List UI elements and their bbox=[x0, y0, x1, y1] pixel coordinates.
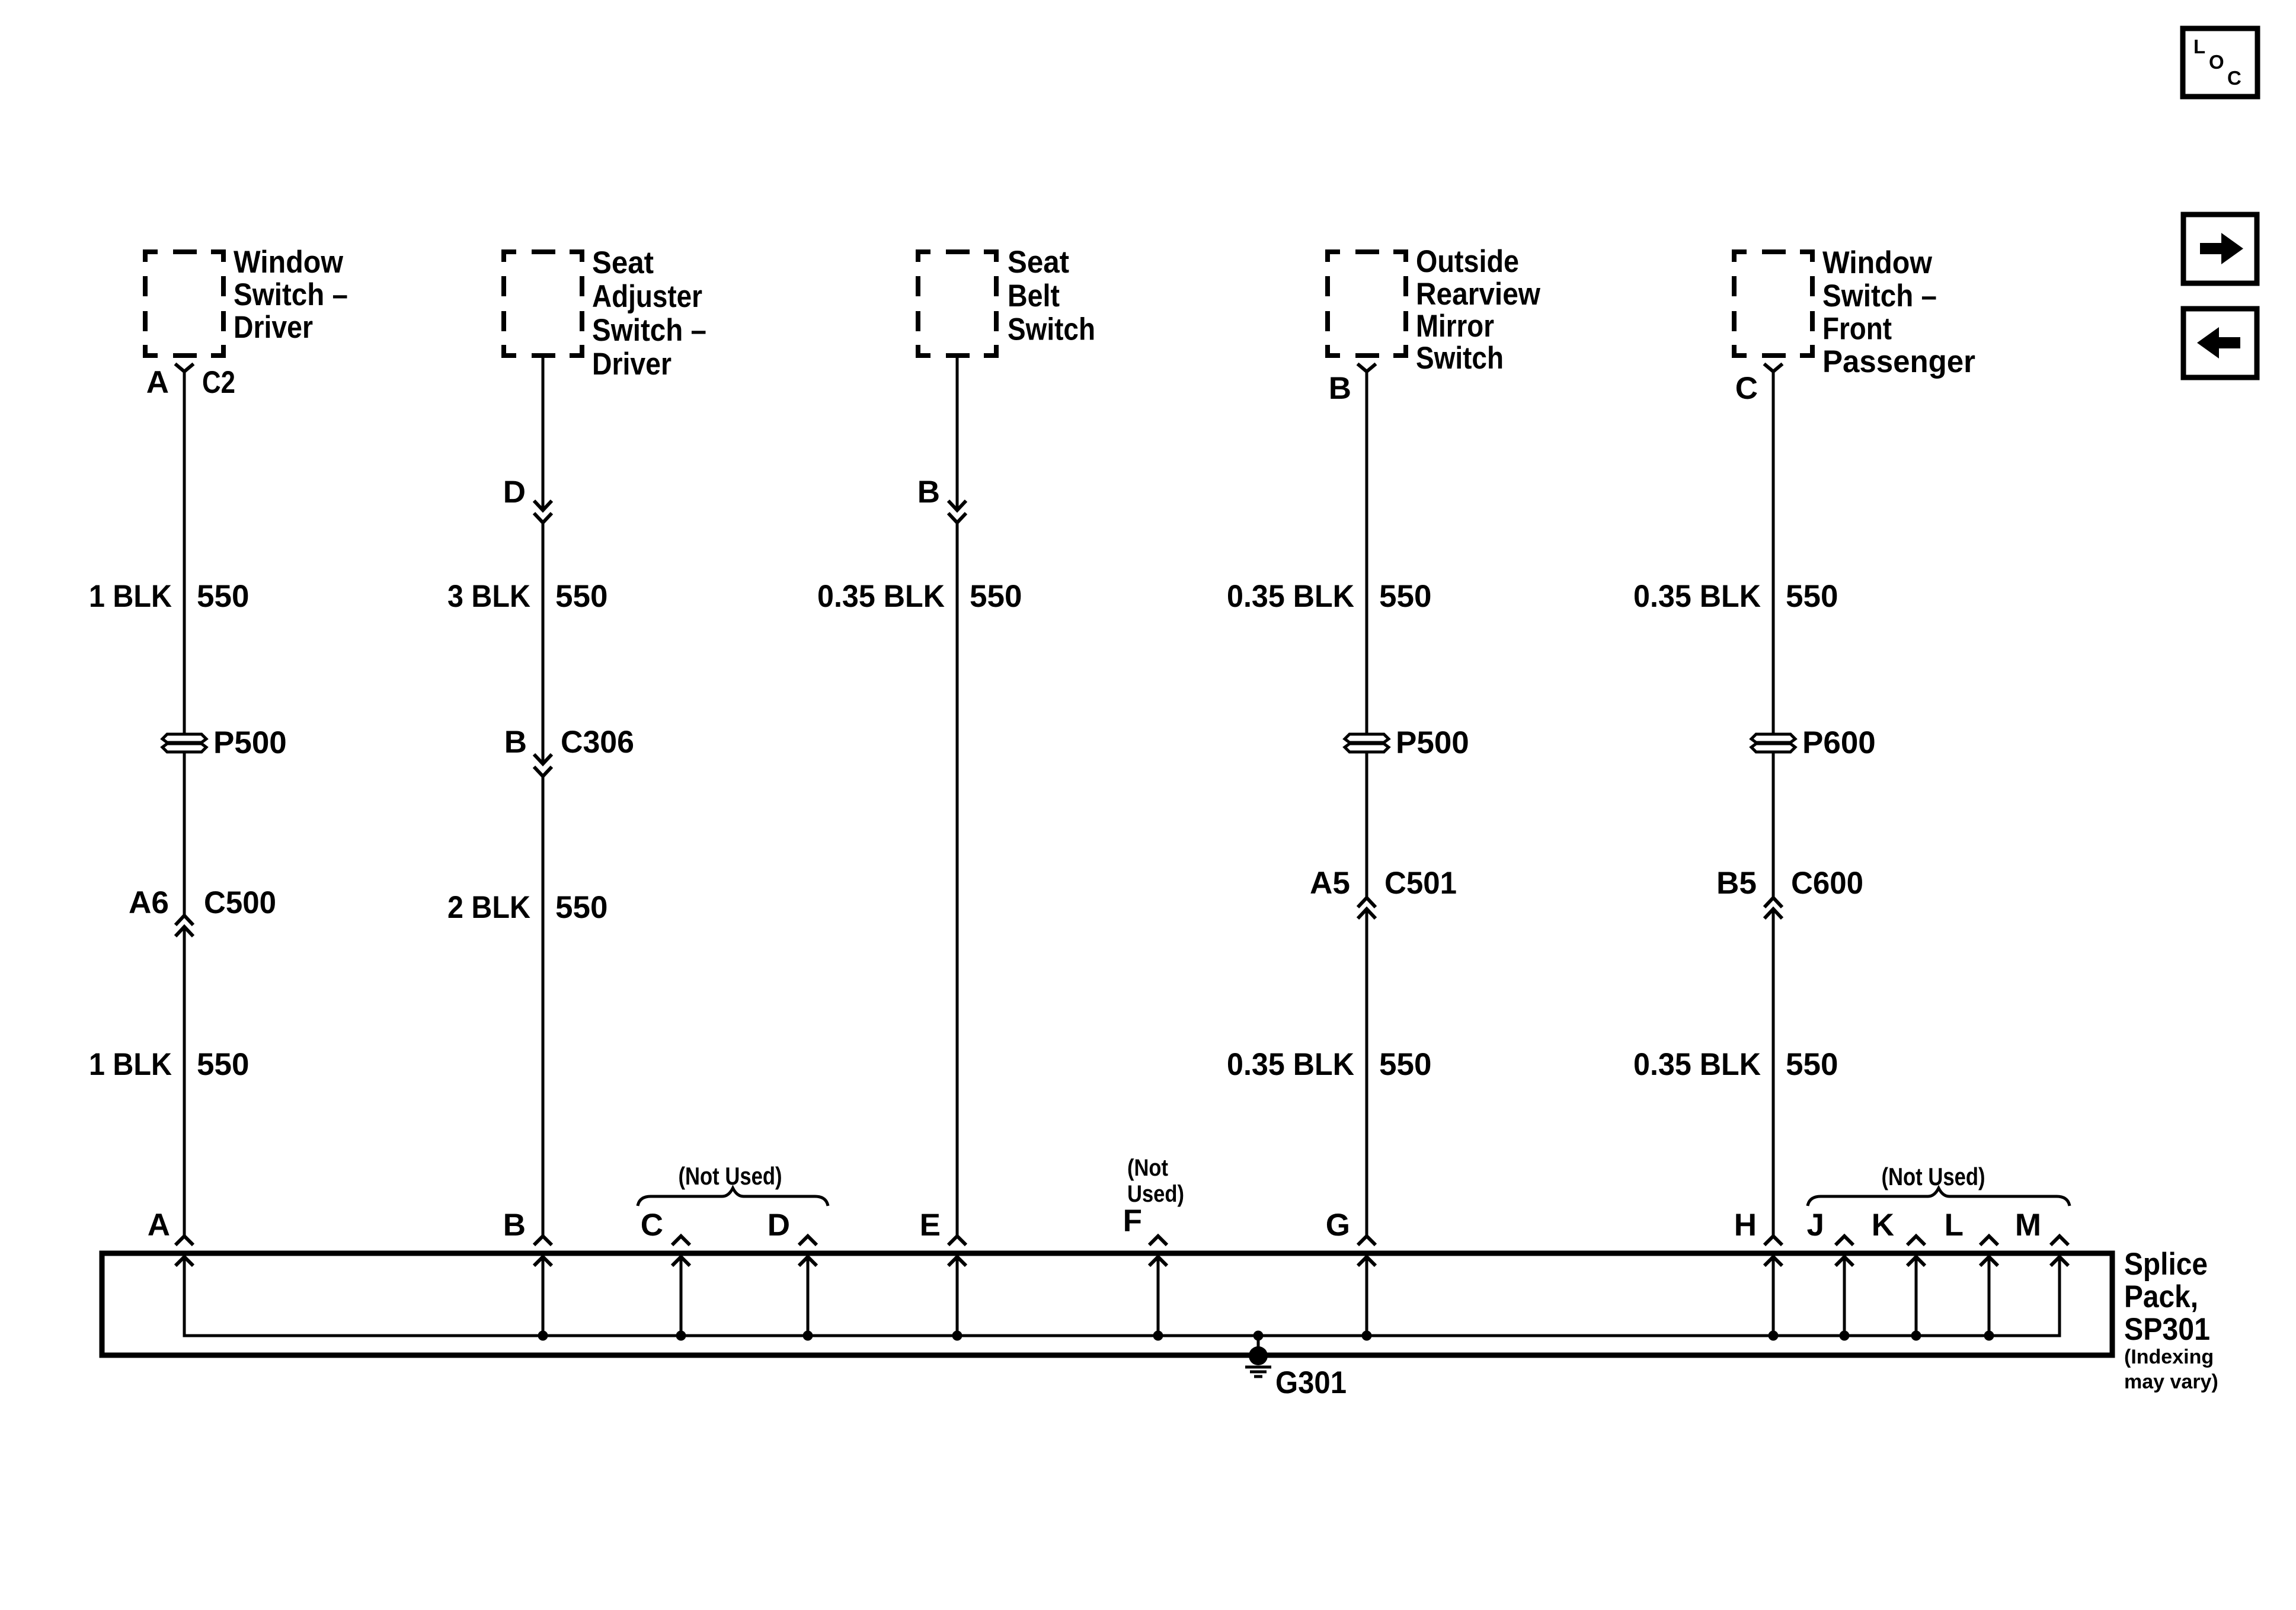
svg-text:P600: P600 bbox=[1802, 725, 1876, 760]
svg-text:B: B bbox=[917, 475, 940, 510]
svg-text:C600: C600 bbox=[1791, 866, 1863, 901]
svg-text:Switch: Switch bbox=[1416, 341, 1504, 376]
svg-text:B: B bbox=[503, 1208, 526, 1243]
svg-text:P500: P500 bbox=[213, 725, 287, 760]
svg-text:C: C bbox=[641, 1208, 663, 1243]
svg-text:550: 550 bbox=[197, 579, 249, 614]
svg-text:C500: C500 bbox=[204, 885, 276, 920]
svg-text:Pack,: Pack, bbox=[2124, 1279, 2198, 1314]
svg-text:0.35 BLK: 0.35 BLK bbox=[1227, 1047, 1354, 1082]
svg-text:Switch –: Switch – bbox=[234, 277, 348, 312]
svg-text:0.35 BLK: 0.35 BLK bbox=[1227, 579, 1354, 614]
svg-text:C501: C501 bbox=[1384, 866, 1457, 901]
svg-text:C: C bbox=[1735, 371, 1758, 406]
svg-text:A5: A5 bbox=[1310, 866, 1350, 901]
svg-text:SP301: SP301 bbox=[2124, 1312, 2210, 1347]
svg-text:550: 550 bbox=[1786, 1047, 1838, 1082]
svg-text:550: 550 bbox=[555, 890, 607, 925]
svg-text:C: C bbox=[2227, 67, 2241, 89]
svg-text:Switch –: Switch – bbox=[1822, 279, 1937, 313]
svg-text:L: L bbox=[1945, 1208, 1964, 1243]
svg-text:H: H bbox=[1734, 1208, 1757, 1243]
svg-text:Splice: Splice bbox=[2124, 1247, 2208, 1282]
svg-text:B: B bbox=[504, 725, 527, 760]
svg-text:B5: B5 bbox=[1716, 866, 1757, 901]
svg-text:Front: Front bbox=[1822, 312, 1892, 347]
svg-text:Seat: Seat bbox=[592, 245, 654, 280]
svg-text:Driver: Driver bbox=[592, 347, 671, 382]
svg-text:Mirror: Mirror bbox=[1416, 309, 1494, 344]
svg-text:G301: G301 bbox=[1275, 1365, 1347, 1400]
svg-text:B: B bbox=[1329, 371, 1351, 406]
svg-text:2 BLK: 2 BLK bbox=[447, 890, 530, 925]
svg-text:1 BLK: 1 BLK bbox=[89, 579, 172, 614]
svg-text:Belt: Belt bbox=[1008, 279, 1060, 313]
svg-text:0.35 BLK: 0.35 BLK bbox=[1633, 1047, 1761, 1082]
svg-text:J: J bbox=[1807, 1208, 1824, 1243]
svg-text:Passenger: Passenger bbox=[1822, 344, 1975, 379]
svg-text:Driver: Driver bbox=[234, 310, 313, 345]
svg-text:550: 550 bbox=[1379, 579, 1431, 614]
svg-text:550: 550 bbox=[555, 579, 607, 614]
svg-text:A: A bbox=[148, 1208, 170, 1243]
svg-text:(Not: (Not bbox=[1127, 1155, 1168, 1181]
svg-text:D: D bbox=[503, 475, 526, 510]
svg-text:0.35 BLK: 0.35 BLK bbox=[1633, 579, 1761, 614]
svg-text:C2: C2 bbox=[202, 365, 235, 400]
svg-text:550: 550 bbox=[970, 579, 1022, 614]
svg-text:Adjuster: Adjuster bbox=[592, 279, 702, 314]
svg-text:0.35 BLK: 0.35 BLK bbox=[817, 579, 945, 614]
svg-text:3 BLK: 3 BLK bbox=[447, 579, 530, 614]
svg-text:D: D bbox=[768, 1208, 790, 1243]
svg-text:(Indexing: (Indexing bbox=[2124, 1346, 2214, 1368]
svg-text:G: G bbox=[1326, 1208, 1350, 1243]
svg-text:C306: C306 bbox=[561, 725, 634, 760]
svg-text:L: L bbox=[2193, 36, 2205, 57]
svg-text:Switch: Switch bbox=[1008, 312, 1095, 347]
svg-text:(Not Used): (Not Used) bbox=[679, 1162, 782, 1190]
svg-text:Outside: Outside bbox=[1416, 244, 1519, 279]
svg-text:M: M bbox=[2015, 1208, 2041, 1243]
svg-text:Rearview: Rearview bbox=[1416, 277, 1541, 312]
svg-text:F: F bbox=[1123, 1204, 1142, 1238]
svg-text:K: K bbox=[1872, 1208, 1894, 1243]
svg-text:A: A bbox=[146, 365, 169, 400]
svg-text:Window: Window bbox=[1822, 245, 1933, 280]
svg-text:A6: A6 bbox=[129, 885, 169, 920]
svg-text:Window: Window bbox=[234, 245, 344, 280]
svg-text:550: 550 bbox=[1379, 1047, 1431, 1082]
svg-text:O: O bbox=[2209, 51, 2224, 73]
svg-text:550: 550 bbox=[1786, 579, 1838, 614]
svg-text:550: 550 bbox=[197, 1047, 249, 1082]
svg-text:P500: P500 bbox=[1396, 725, 1469, 760]
svg-text:Switch –: Switch – bbox=[592, 313, 706, 348]
svg-text:E: E bbox=[920, 1208, 941, 1243]
svg-text:Used): Used) bbox=[1127, 1181, 1184, 1207]
svg-text:Seat: Seat bbox=[1008, 245, 1069, 280]
svg-text:1 BLK: 1 BLK bbox=[89, 1047, 172, 1082]
svg-text:(Not Used): (Not Used) bbox=[1882, 1163, 1985, 1190]
svg-text:may vary): may vary) bbox=[2124, 1371, 2218, 1393]
